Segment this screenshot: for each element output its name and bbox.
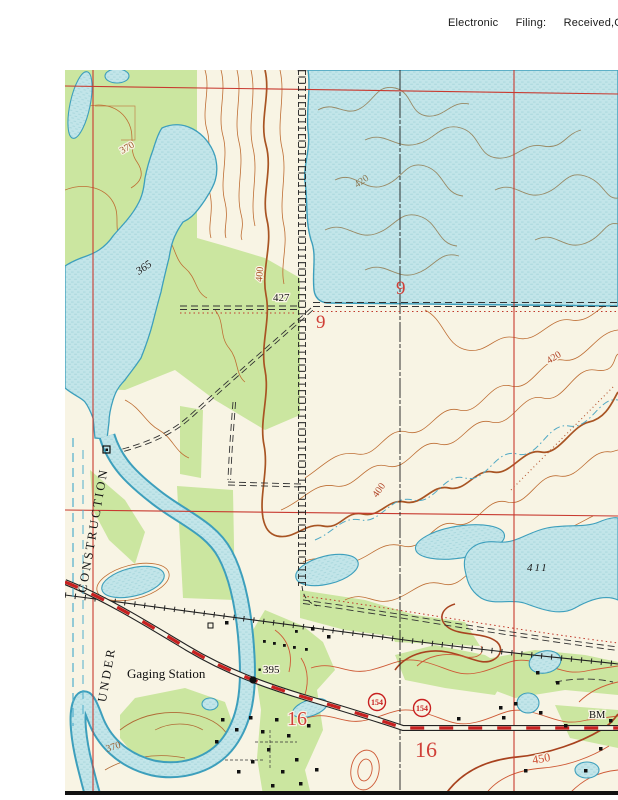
route-154-label-east: 154 — [416, 704, 428, 713]
section-number-16-west: 16 — [287, 708, 307, 730]
section-number-16-east: 16 — [415, 737, 437, 762]
map-neatline — [65, 791, 618, 795]
route-154-label-west: 154 — [371, 698, 383, 707]
document-header: Electronic Filing: Received,Cl — [448, 17, 618, 29]
header-word-filing: Filing: — [516, 17, 547, 29]
route-154-shield-east: 154 — [414, 700, 431, 717]
topo-map-figure: 154 154 370 365 420 427 9 9 400 420 400 … — [65, 70, 618, 795]
contour-label-400-west: 400 — [254, 266, 266, 282]
benchmark-label: BM — [589, 710, 606, 721]
pond-label-411: 411 — [527, 562, 549, 574]
route-154-shield-west: 154 — [369, 694, 386, 711]
reservoir-lake — [305, 70, 618, 306]
section-number-9-west: 9 — [316, 312, 326, 333]
topo-map: 154 154 370 365 420 427 9 9 400 420 400 … — [65, 70, 618, 795]
header-word-received: Received,Cl — [564, 17, 618, 29]
header-word-electronic: Electronic — [448, 17, 498, 29]
spot-elevation-395: 395 — [263, 664, 280, 676]
section-number-9-lake: 9 — [396, 278, 406, 299]
gaging-station-label: Gaging Station — [127, 666, 206, 681]
spot-elevation-427: 427 — [273, 292, 290, 304]
